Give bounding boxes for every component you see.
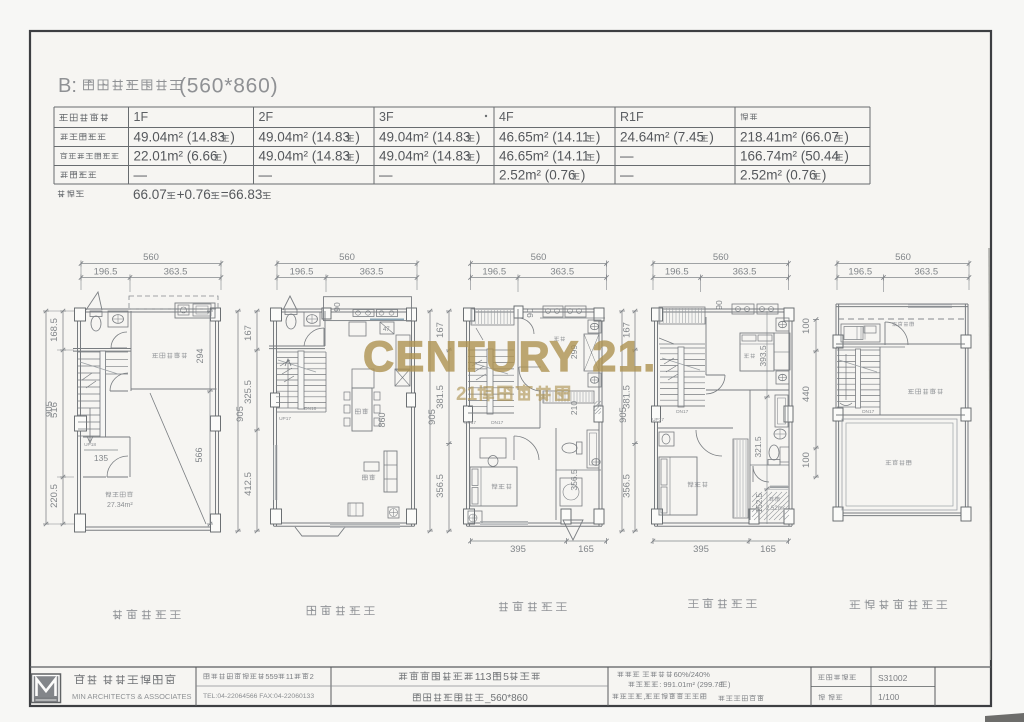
- svg-text:): ): [709, 130, 714, 145]
- svg-text:—: —: [379, 168, 393, 183]
- svg-text:395: 395: [510, 544, 526, 555]
- svg-text:DN17: DN17: [676, 409, 689, 415]
- svg-text:4F: 4F: [499, 110, 514, 124]
- svg-text:167: 167: [243, 325, 254, 341]
- svg-text:MIN ARCHITECTS & ASSOCIATES: MIN ARCHITECTS & ASSOCIATES: [72, 692, 191, 701]
- svg-text:165: 165: [760, 544, 776, 555]
- svg-text:60%/240%: 60%/240%: [674, 670, 711, 679]
- svg-text:UP17: UP17: [279, 416, 291, 422]
- svg-text:49.04m² (14.83: 49.04m² (14.83: [379, 130, 471, 145]
- svg-text:21: 21: [456, 384, 478, 405]
- svg-text:363.5: 363.5: [733, 267, 757, 278]
- svg-text:—: —: [620, 149, 634, 164]
- svg-text:516: 516: [49, 402, 60, 418]
- svg-text:356.5: 356.5: [622, 474, 633, 498]
- svg-text:—: —: [620, 168, 634, 183]
- svg-text:560: 560: [713, 252, 729, 263]
- svg-text:2.52m²: 2.52m²: [766, 506, 785, 512]
- svg-text:90: 90: [332, 302, 342, 312]
- svg-text:3F: 3F: [379, 110, 394, 124]
- svg-text:393.5: 393.5: [758, 345, 768, 367]
- svg-text:49.04m² (14.83: 49.04m² (14.83: [259, 130, 351, 145]
- svg-text:27.34m²: 27.34m²: [107, 502, 133, 509]
- svg-text:559: 559: [265, 672, 278, 681]
- svg-text:11: 11: [286, 672, 294, 681]
- svg-text:363.5: 363.5: [164, 267, 188, 278]
- svg-text:196.5: 196.5: [482, 267, 506, 278]
- svg-text:325.5: 325.5: [243, 380, 254, 404]
- svg-text:90: 90: [714, 300, 724, 310]
- svg-text:—: —: [259, 168, 273, 183]
- svg-text:363.5: 363.5: [360, 267, 384, 278]
- svg-text:294: 294: [195, 348, 205, 363]
- svg-text:): ): [355, 149, 360, 164]
- svg-text:49.04m² (14.83: 49.04m² (14.83: [379, 149, 471, 164]
- svg-text:196.5: 196.5: [848, 267, 872, 278]
- svg-text:196.5: 196.5: [290, 267, 314, 278]
- svg-text:220.5: 220.5: [49, 484, 60, 508]
- svg-text:R1F: R1F: [620, 110, 644, 124]
- svg-text:CENTURY 21.: CENTURY 21.: [363, 333, 657, 381]
- svg-text:24.64m² (7.45: 24.64m² (7.45: [620, 130, 704, 145]
- svg-text:UP18: UP18: [84, 442, 96, 448]
- svg-text:22.01m² (6.66: 22.01m² (6.66: [134, 149, 218, 164]
- svg-text:381.5: 381.5: [435, 385, 446, 409]
- svg-text:2.52m² (0.76: 2.52m² (0.76: [740, 168, 817, 183]
- svg-text:560: 560: [143, 252, 159, 263]
- svg-text:): ): [476, 149, 481, 164]
- svg-text:560: 560: [339, 252, 355, 263]
- svg-text:): ): [822, 168, 827, 183]
- svg-text:905: 905: [427, 409, 438, 425]
- svg-text:440: 440: [801, 386, 812, 402]
- svg-text:—: —: [134, 168, 148, 183]
- svg-text:100: 100: [801, 452, 812, 468]
- svg-text:DN17: DN17: [491, 420, 504, 426]
- svg-text:): ): [596, 149, 601, 164]
- svg-text:152.5: 152.5: [755, 492, 764, 513]
- svg-text:412.5: 412.5: [243, 472, 254, 496]
- svg-text:381.5: 381.5: [622, 385, 633, 409]
- svg-text:=66.83: =66.83: [221, 187, 263, 202]
- svg-text:321.5: 321.5: [753, 436, 763, 458]
- svg-text:100: 100: [801, 318, 812, 334]
- svg-text:560: 560: [895, 252, 911, 263]
- svg-text:218.41m² (66.07: 218.41m² (66.07: [740, 130, 839, 145]
- svg-text:46.65m² (14.11: 46.65m² (14.11: [499, 130, 590, 145]
- svg-text:): ): [230, 130, 235, 145]
- svg-text:166.74m² (50.44: 166.74m² (50.44: [740, 149, 840, 164]
- svg-text:1/100: 1/100: [878, 692, 900, 702]
- svg-text:S31002: S31002: [878, 673, 908, 683]
- svg-text:363.5: 363.5: [550, 267, 574, 278]
- svg-text:2F: 2F: [259, 110, 274, 124]
- svg-text:2.52m² (0.76: 2.52m² (0.76: [499, 168, 576, 183]
- svg-text:,: ,: [643, 692, 645, 701]
- svg-text:356.5: 356.5: [435, 474, 446, 498]
- svg-text:+0.76: +0.76: [177, 187, 211, 202]
- svg-text:DN17: DN17: [862, 409, 875, 415]
- svg-text:): ): [581, 168, 586, 183]
- svg-text:B:: B:: [58, 75, 77, 97]
- svg-text:168.5: 168.5: [49, 318, 60, 342]
- svg-text:): ): [596, 130, 601, 145]
- svg-text:TEL:04-22064566 FAX:04-2206013: TEL:04-22064566 FAX:04-22060133: [203, 693, 314, 700]
- svg-text:): ): [223, 149, 228, 164]
- svg-text:: 991.01m² (299.78: : 991.01m² (299.78: [659, 680, 722, 689]
- svg-text:_560*860: _560*860: [484, 693, 528, 704]
- svg-text:2: 2: [310, 672, 314, 681]
- svg-text:66.07: 66.07: [133, 187, 167, 202]
- svg-text:560: 560: [531, 252, 547, 263]
- svg-text:363.5: 363.5: [914, 267, 938, 278]
- svg-text:): ): [476, 130, 481, 145]
- svg-text:): ): [844, 149, 849, 164]
- svg-text:UP17: UP17: [652, 417, 664, 423]
- svg-text:49.04m² (14.83: 49.04m² (14.83: [259, 149, 351, 164]
- svg-text:5: 5: [503, 671, 509, 683]
- svg-text:113: 113: [475, 671, 492, 683]
- svg-text:566: 566: [194, 447, 204, 462]
- svg-text:860: 860: [377, 412, 387, 427]
- svg-text:1F: 1F: [134, 110, 149, 124]
- svg-text:165: 165: [578, 544, 594, 555]
- svg-text:): ): [844, 130, 849, 145]
- svg-text:196.5: 196.5: [94, 267, 118, 278]
- svg-text:UP17: UP17: [464, 420, 476, 426]
- svg-text:DN18: DN18: [304, 406, 317, 412]
- svg-text:46.65m² (14.11: 46.65m² (14.11: [499, 149, 590, 164]
- svg-text:196.5: 196.5: [665, 267, 689, 278]
- svg-text:395: 395: [693, 544, 709, 555]
- svg-text:49.04m² (14.83: 49.04m² (14.83: [134, 130, 226, 145]
- svg-text:905: 905: [235, 406, 246, 422]
- svg-text:(560*860): (560*860): [179, 75, 278, 98]
- svg-text:135: 135: [94, 453, 108, 463]
- svg-text:): ): [355, 130, 360, 145]
- svg-text:90: 90: [525, 308, 535, 318]
